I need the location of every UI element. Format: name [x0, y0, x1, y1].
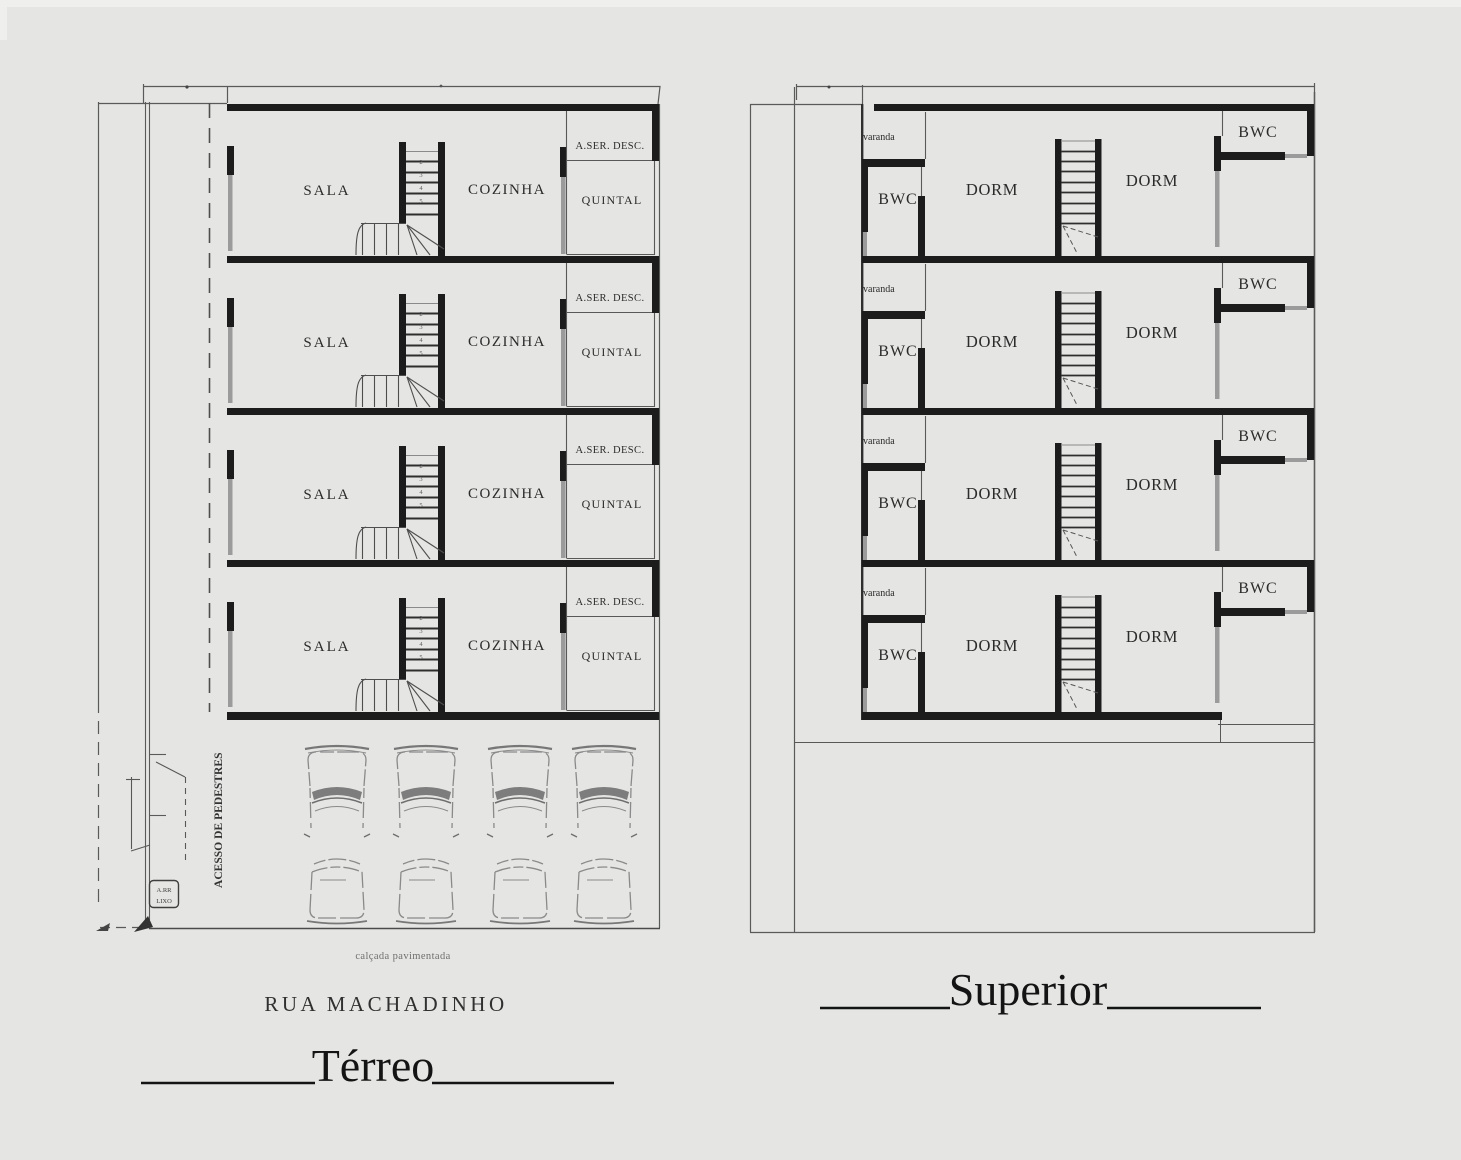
svg-text:QUINTAL: QUINTAL [582, 649, 643, 663]
svg-text:varanda: varanda [863, 132, 895, 143]
svg-text:A.SER. DESC.: A.SER. DESC. [576, 445, 645, 456]
svg-text:DORM: DORM [966, 484, 1018, 503]
svg-text:BWC: BWC [1238, 124, 1277, 141]
svg-text:COZINHA: COZINHA [468, 638, 546, 654]
svg-text:5: 5 [419, 502, 422, 509]
svg-text:DORM: DORM [1126, 171, 1178, 190]
svg-text:3: 3 [419, 628, 422, 635]
svg-text:varanda: varanda [863, 436, 895, 447]
svg-text:3: 3 [419, 324, 422, 331]
svg-text:2: 2 [419, 159, 422, 166]
svg-text:BWC: BWC [1238, 428, 1277, 445]
svg-text:A.SER. DESC.: A.SER. DESC. [576, 293, 645, 304]
svg-text:A.SER. DESC.: A.SER. DESC. [576, 141, 645, 152]
svg-text:2: 2 [419, 615, 422, 622]
svg-text:COZINHA: COZINHA [468, 486, 546, 502]
svg-text:DORM: DORM [966, 332, 1018, 351]
svg-text:QUINTAL: QUINTAL [582, 497, 643, 511]
svg-text:5: 5 [419, 654, 422, 661]
svg-text:BWC: BWC [878, 191, 917, 208]
svg-text:Térreo: Térreo [312, 1040, 435, 1091]
svg-text:2: 2 [419, 311, 422, 318]
svg-text:BWC: BWC [878, 495, 917, 512]
svg-text:BWC: BWC [878, 343, 917, 360]
svg-text:BWC: BWC [1238, 580, 1277, 597]
svg-text:5: 5 [419, 198, 422, 205]
svg-text:SALA: SALA [303, 487, 350, 503]
svg-text:DORM: DORM [1126, 475, 1178, 494]
svg-text:2: 2 [419, 463, 422, 470]
svg-text:RUA MACHADINHO: RUA MACHADINHO [264, 992, 507, 1016]
svg-text:COZINHA: COZINHA [468, 334, 546, 350]
svg-text:DORM: DORM [966, 636, 1018, 655]
svg-text:BWC: BWC [1238, 276, 1277, 293]
svg-text:DORM: DORM [966, 180, 1018, 199]
svg-text:COZINHA: COZINHA [468, 182, 546, 198]
svg-text:ACESSO DE PEDESTRES: ACESSO DE PEDESTRES [213, 752, 225, 888]
svg-text:LIXO: LIXO [156, 898, 172, 905]
svg-text:SALA: SALA [303, 335, 350, 351]
svg-text:Superior: Superior [949, 964, 1107, 1015]
svg-text:5: 5 [419, 350, 422, 357]
svg-text:varanda: varanda [863, 284, 895, 295]
svg-text:A.RR: A.RR [157, 887, 173, 894]
svg-text:varanda: varanda [863, 588, 895, 599]
svg-text:DORM: DORM [1126, 627, 1178, 646]
svg-text:3: 3 [419, 172, 422, 179]
svg-text:A.SER. DESC.: A.SER. DESC. [576, 597, 645, 608]
svg-text:SALA: SALA [303, 183, 350, 199]
svg-text:SALA: SALA [303, 639, 350, 655]
svg-text:QUINTAL: QUINTAL [582, 345, 643, 359]
svg-text:3: 3 [419, 476, 422, 483]
svg-text:DORM: DORM [1126, 323, 1178, 342]
svg-text:BWC: BWC [878, 647, 917, 664]
svg-text:calçada pavimentada: calçada pavimentada [355, 951, 450, 962]
svg-text:QUINTAL: QUINTAL [582, 193, 643, 207]
